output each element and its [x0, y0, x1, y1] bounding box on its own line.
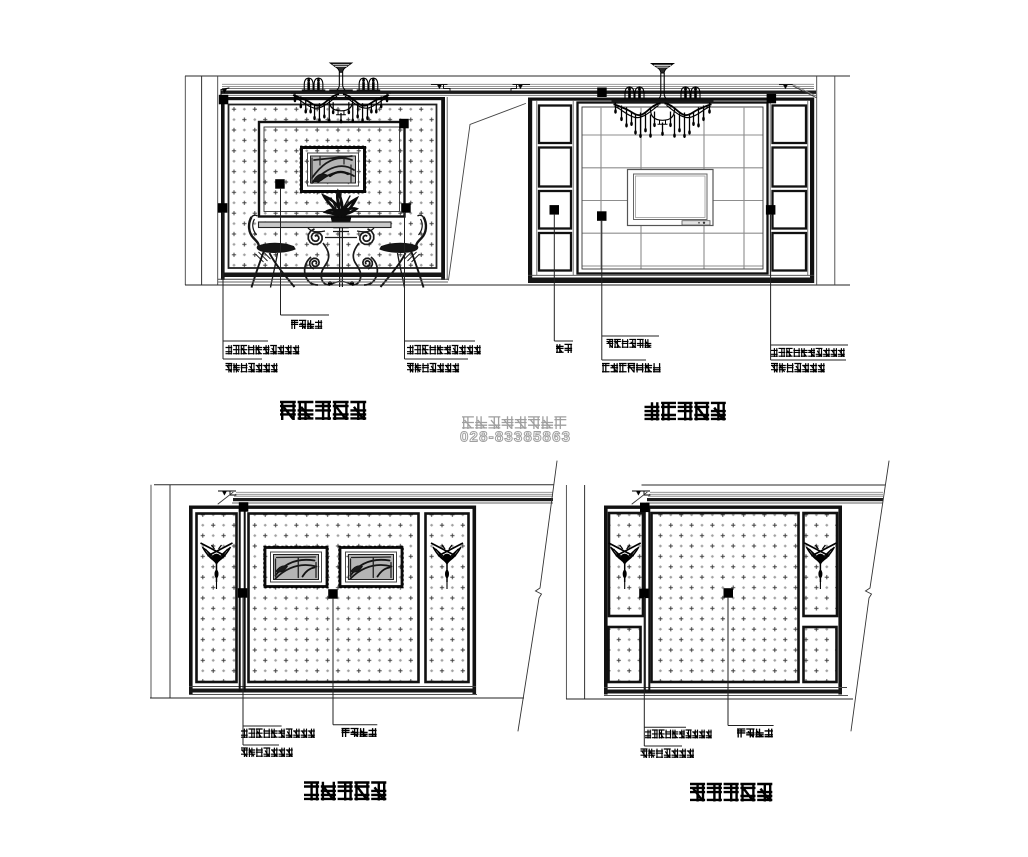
- svg-text:028-83385863: 028-83385863: [460, 429, 571, 446]
